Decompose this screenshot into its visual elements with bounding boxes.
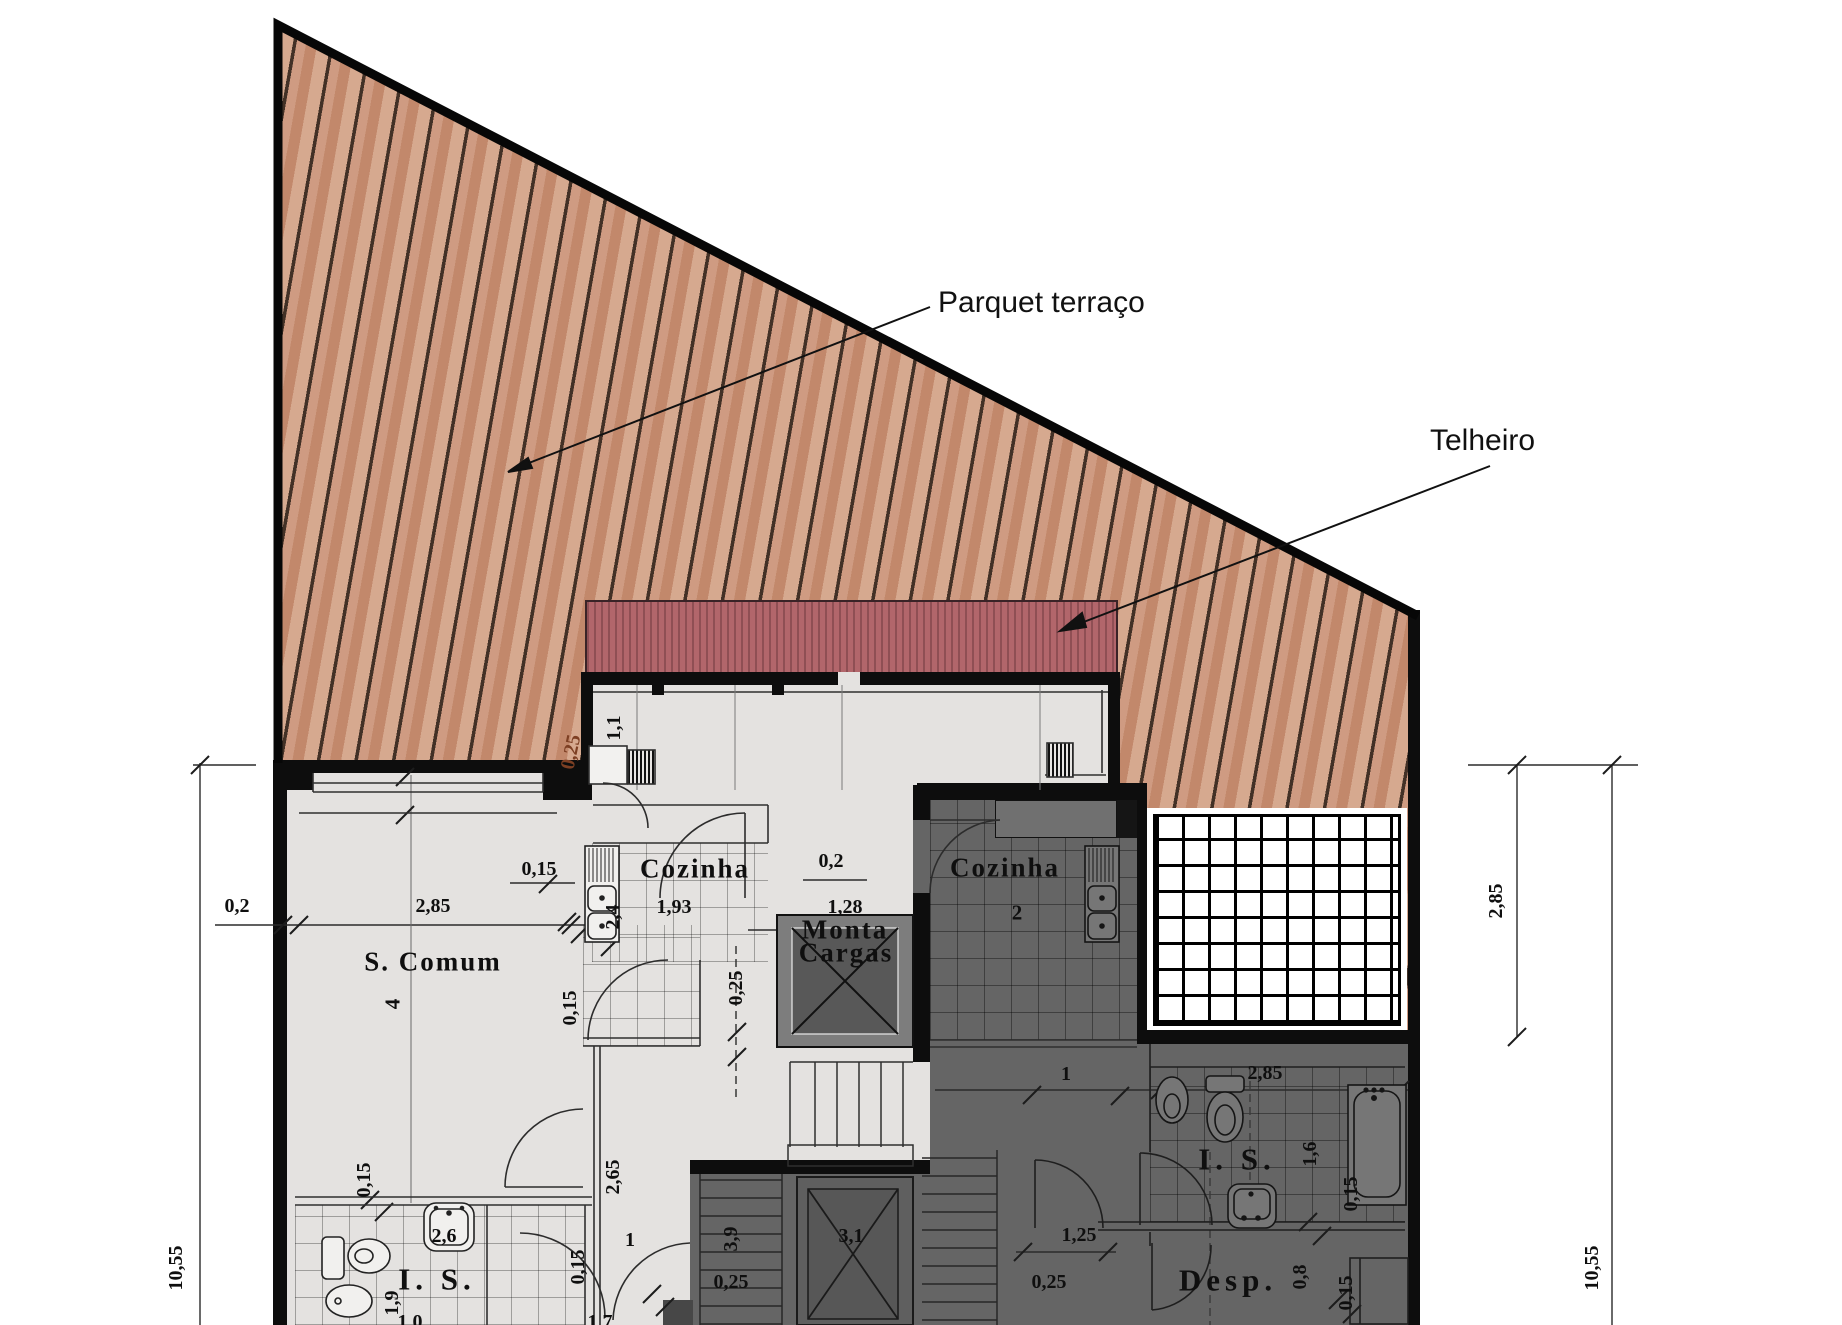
dimension-label: 0,2	[819, 851, 844, 871]
dimension-label: 2,85	[416, 896, 451, 916]
room-label-cargas: Cargas	[799, 940, 894, 967]
dimension-label: 0,2	[225, 896, 250, 916]
room-label-s-comum: S. Comum	[364, 949, 502, 976]
dimension-label: 0,15	[1341, 1177, 1361, 1212]
dimension-label: 0,15	[1336, 1276, 1356, 1311]
dimension-label: 0,25	[1032, 1272, 1067, 1292]
dimension-label: 2,4	[603, 905, 623, 930]
telheiro-label: Telheiro	[1430, 426, 1535, 456]
room-label-cozinha-right: Cozinha	[950, 855, 1060, 882]
dimension-label: 0,25	[714, 1272, 749, 1292]
labels-layer: Parquet terraço Telheiro S. Comum 4 Cozi…	[0, 0, 1842, 1325]
dimension-label: 2,6	[432, 1226, 457, 1246]
dimension-label: 2,65	[603, 1160, 623, 1195]
room-label-cozinha-left: Cozinha	[640, 856, 750, 883]
dimension-label: 10,55	[1582, 1246, 1602, 1291]
dimension-label: 1,6	[1300, 1142, 1320, 1167]
dimension-label: 1,7	[588, 1312, 613, 1325]
dimension-label: 1	[625, 1230, 635, 1250]
dimension-label: 1	[1061, 1064, 1071, 1084]
room-label-desp: Desp.	[1179, 1265, 1277, 1296]
dimension-label: 2,85	[1486, 884, 1506, 919]
room-number-cozinha-right: 2	[1012, 903, 1023, 924]
dimension-label: 1,28	[828, 897, 863, 917]
parquet-terrace-label: Parquet terraço	[938, 288, 1145, 318]
dimension-label: 0,15	[522, 859, 557, 879]
dimension-label: 10,55	[166, 1246, 186, 1291]
dimension-label: 3,9	[721, 1227, 741, 1252]
room-number-s-comum: 4	[383, 999, 404, 1010]
dimension-label: 1,25	[1062, 1225, 1097, 1245]
dimension-label: 3,1	[839, 1226, 864, 1246]
dimension-label: 1,93	[657, 897, 692, 917]
dimension-label: 0,25	[726, 971, 746, 1006]
dimension-label: 0,25	[558, 733, 585, 771]
dimension-label: 1,0	[398, 1312, 423, 1325]
dimension-label: 0,8	[1290, 1265, 1310, 1290]
dimension-label: 0,15	[354, 1163, 374, 1198]
dimension-label: 2,85	[1248, 1063, 1283, 1083]
room-label-is-right: I. S.	[1198, 1144, 1276, 1175]
room-label-is-left: I. S.	[398, 1264, 476, 1295]
dimension-label: 0,15	[560, 991, 580, 1026]
floor-plan: Parquet terraço Telheiro S. Comum 4 Cozi…	[0, 0, 1842, 1325]
dimension-label: 0,15	[568, 1250, 588, 1285]
dimension-label: 1,1	[604, 716, 624, 741]
